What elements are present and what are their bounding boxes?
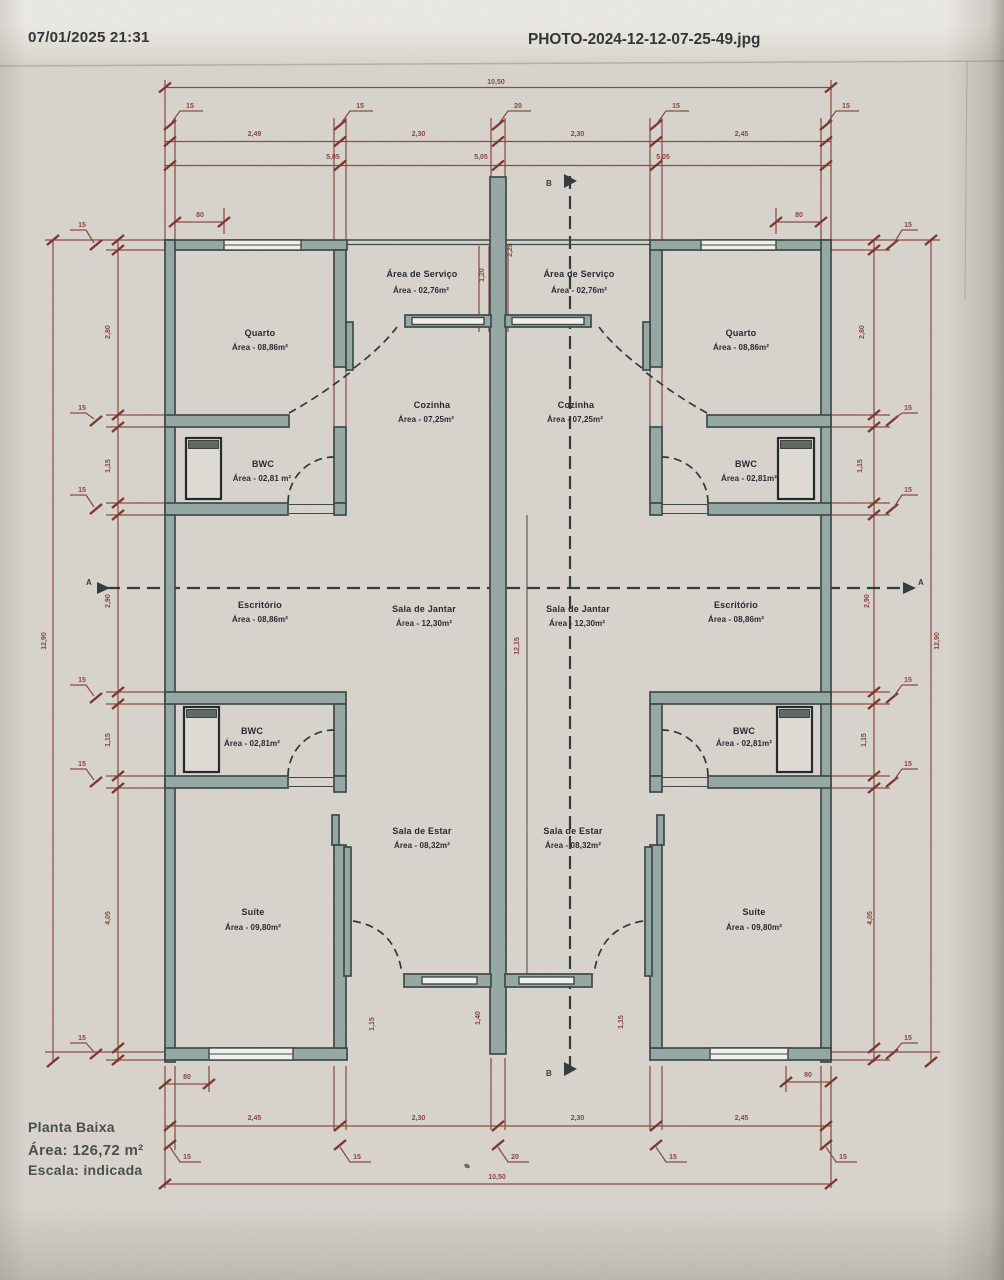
svg-text:Escala: indicada: Escala: indicada [28, 1162, 143, 1178]
svg-text:Área: 126,72 m²: Área: 126,72 m² [28, 1142, 143, 1159]
svg-text:Escritório: Escritório [238, 600, 282, 610]
svg-text:BWC: BWC [241, 726, 263, 736]
svg-text:BWC: BWC [733, 726, 755, 736]
svg-text:Área - 12,30m²: Área - 12,30m² [549, 619, 605, 628]
svg-text:Área - 08,86m²: Área - 08,86m² [713, 343, 769, 352]
svg-text:Área - 02,81 m²: Área - 02,81 m² [233, 474, 292, 483]
svg-text:Área - 07,25m²: Área - 07,25m² [398, 415, 454, 424]
svg-text:Área de Serviço: Área de Serviço [386, 269, 457, 279]
svg-text:Área - 08,86m²: Área - 08,86m² [708, 615, 764, 624]
svg-text:BWC: BWC [735, 459, 757, 469]
svg-text:Área - 02,81m²: Área - 02,81m² [224, 739, 280, 748]
svg-text:Área - 08,32m²: Área - 08,32m² [545, 841, 601, 850]
svg-text:Cozinha: Cozinha [558, 400, 595, 410]
svg-text:Área - 02,76m²: Área - 02,76m² [393, 286, 449, 295]
svg-text:Área - 02,81m²: Área - 02,81m² [721, 474, 777, 483]
svg-text:Área - 08,86m²: Área - 08,86m² [232, 343, 288, 352]
svg-text:Suíte: Suíte [241, 907, 264, 917]
svg-text:Área - 08,32m²: Área - 08,32m² [394, 841, 450, 850]
svg-text:Cozinha: Cozinha [414, 400, 451, 410]
svg-text:Sala de Estar: Sala de Estar [392, 826, 451, 836]
svg-text:Área - 12,30m²: Área - 12,30m² [396, 619, 452, 628]
svg-text:Área - 08,86m²: Área - 08,86m² [232, 615, 288, 624]
svg-text:BWC: BWC [252, 459, 274, 469]
svg-text:Escritório: Escritório [714, 600, 758, 610]
svg-text:Área - 07,25m²: Área - 07,25m² [547, 415, 603, 424]
svg-text:Área - 09,80m²: Área - 09,80m² [225, 923, 281, 932]
svg-text:Suíte: Suíte [742, 907, 765, 917]
svg-text:Área - 02,76m²: Área - 02,76m² [551, 286, 607, 295]
svg-text:Área - 09,80m²: Área - 09,80m² [726, 923, 782, 932]
svg-text:Área - 02,81m²: Área - 02,81m² [716, 739, 772, 748]
svg-text:Planta Baixa: Planta Baixa [28, 1119, 115, 1135]
svg-text:Área de Serviço: Área de Serviço [543, 269, 614, 279]
svg-text:Quarto: Quarto [726, 328, 757, 338]
svg-text:Quarto: Quarto [245, 328, 276, 338]
svg-text:Sala de Jantar: Sala de Jantar [392, 604, 456, 614]
svg-text:Sala de Estar: Sala de Estar [543, 826, 602, 836]
svg-text:Sala de Jantar: Sala de Jantar [546, 604, 610, 614]
